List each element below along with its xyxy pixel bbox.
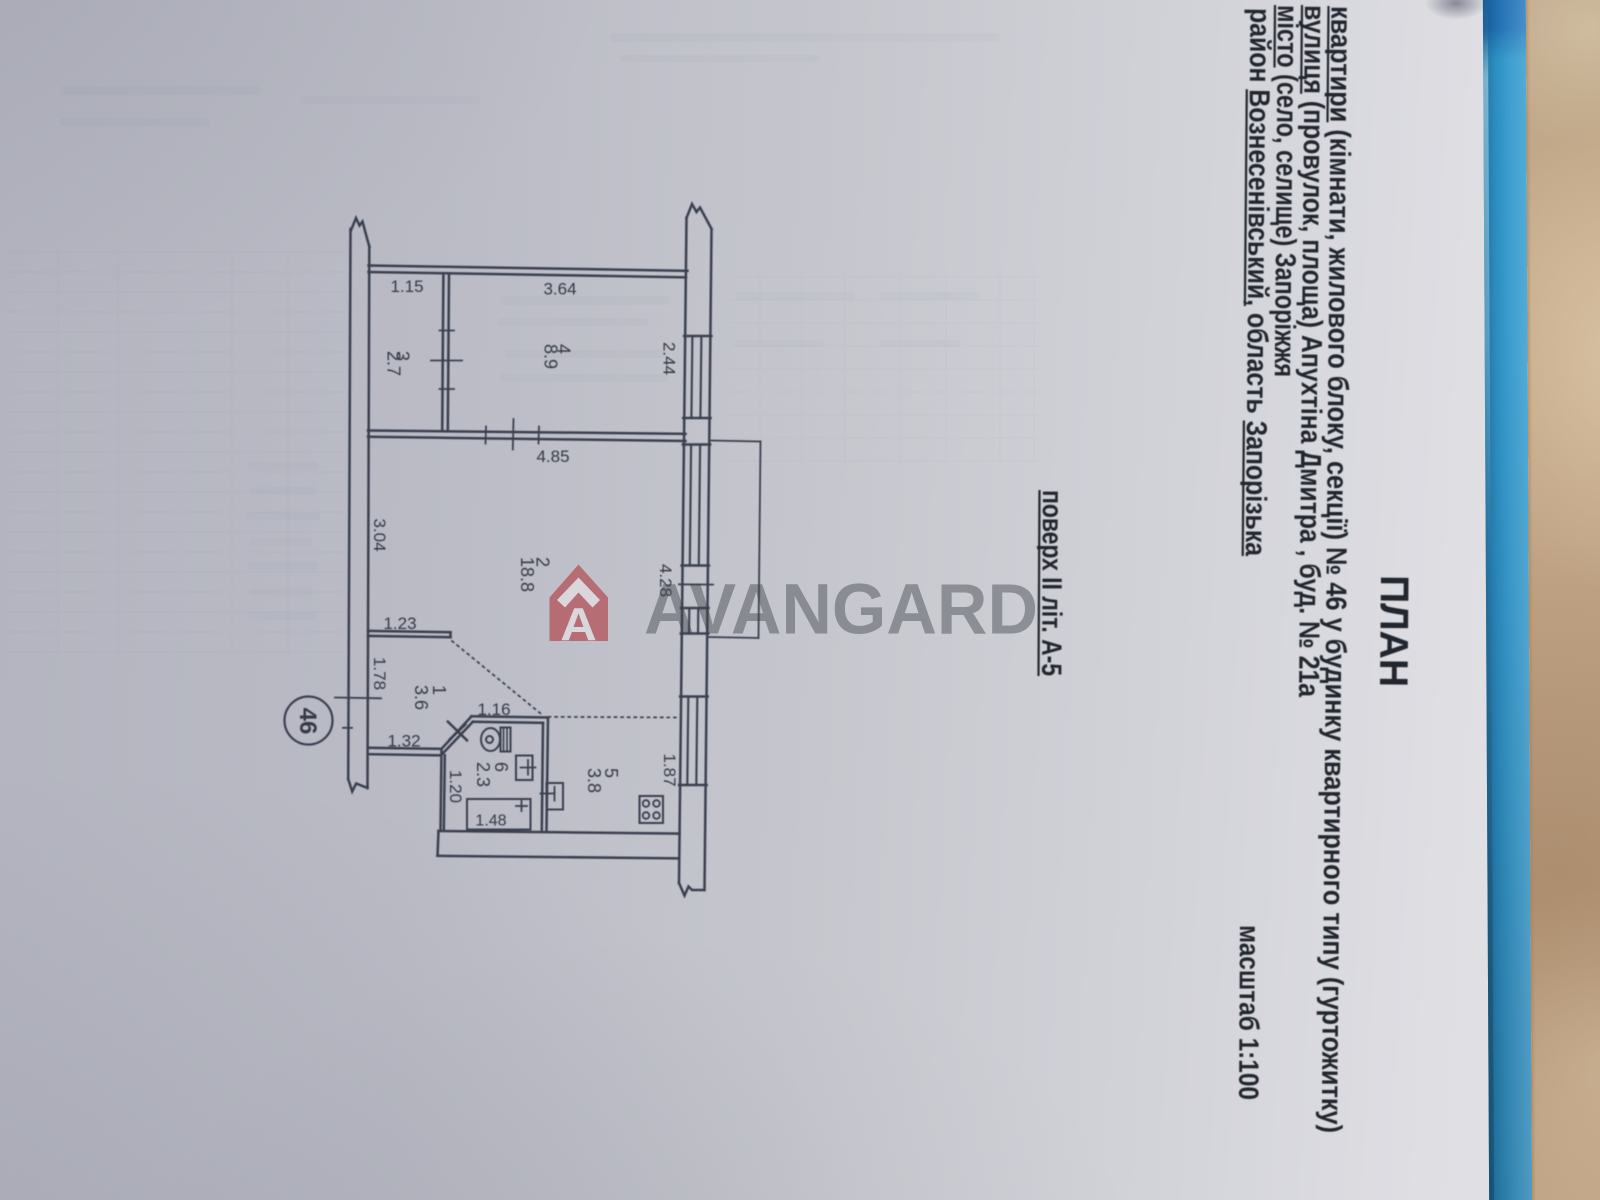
- svg-text:1: 1: [429, 685, 449, 695]
- svg-text:2.7: 2.7: [384, 351, 404, 376]
- svg-text:3.8: 3.8: [584, 768, 604, 793]
- svg-text:1.87: 1.87: [660, 753, 679, 786]
- svg-text:1.20: 1.20: [446, 770, 465, 803]
- svg-text:ПЛАН: ПЛАН: [1371, 575, 1416, 687]
- svg-text:1.16: 1.16: [477, 700, 510, 719]
- svg-text:46: 46: [294, 708, 321, 735]
- svg-text:3.04: 3.04: [370, 518, 389, 551]
- svg-text:4.85: 4.85: [536, 447, 569, 466]
- svg-text:AVANGARD: AVANGARD: [644, 571, 1038, 650]
- svg-text:1.23: 1.23: [383, 614, 416, 633]
- svg-text:1.32: 1.32: [387, 732, 420, 751]
- svg-text:поверх ІІ літ. А-5: поверх ІІ літ. А-5: [1036, 490, 1068, 676]
- svg-text:A: A: [560, 599, 597, 650]
- svg-text:3.64: 3.64: [543, 280, 576, 299]
- svg-text:масштаб 1:100: масштаб 1:100: [1233, 925, 1265, 1100]
- svg-text:8.9: 8.9: [541, 344, 561, 369]
- svg-text:18.8: 18.8: [517, 557, 537, 592]
- svg-text:1.78: 1.78: [370, 657, 389, 690]
- svg-text:6: 6: [491, 762, 511, 772]
- svg-text:2.44: 2.44: [660, 342, 679, 375]
- svg-text:1.15: 1.15: [390, 277, 423, 296]
- svg-text:2.3: 2.3: [473, 762, 493, 787]
- svg-text:1.48: 1.48: [475, 813, 506, 830]
- svg-text:3.6: 3.6: [411, 685, 431, 710]
